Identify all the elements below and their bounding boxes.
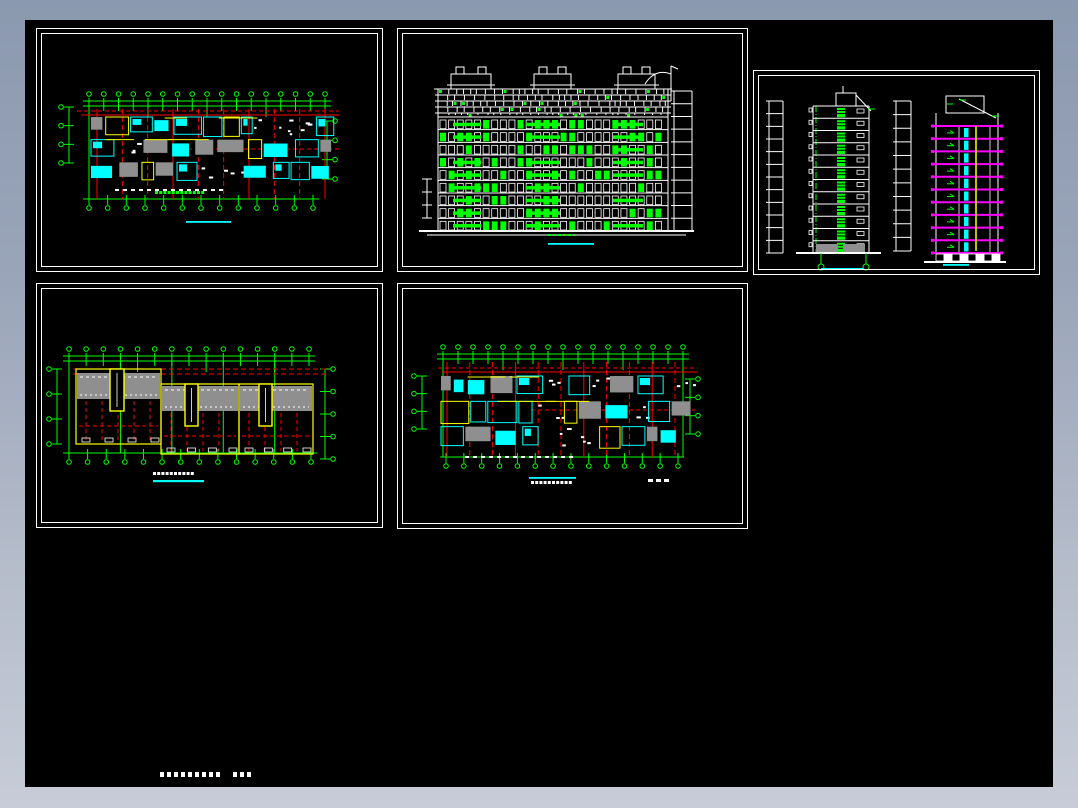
viewport-roof-plan[interactable] <box>36 283 383 528</box>
drawing-canvas <box>25 20 1053 787</box>
building-sections-drawing <box>754 71 1041 276</box>
viewport-building-sections[interactable] <box>753 70 1040 275</box>
floor-plan-1-drawing <box>37 29 384 273</box>
building-elevation-drawing <box>398 29 749 273</box>
viewport-floor-plan-1[interactable] <box>36 28 383 272</box>
floor-plan-2-drawing <box>398 284 749 530</box>
viewport-building-elevation[interactable] <box>397 28 748 272</box>
cad-application-window <box>0 0 1078 808</box>
roof-plan-drawing <box>37 284 384 529</box>
viewport-floor-plan-2[interactable] <box>397 283 748 529</box>
